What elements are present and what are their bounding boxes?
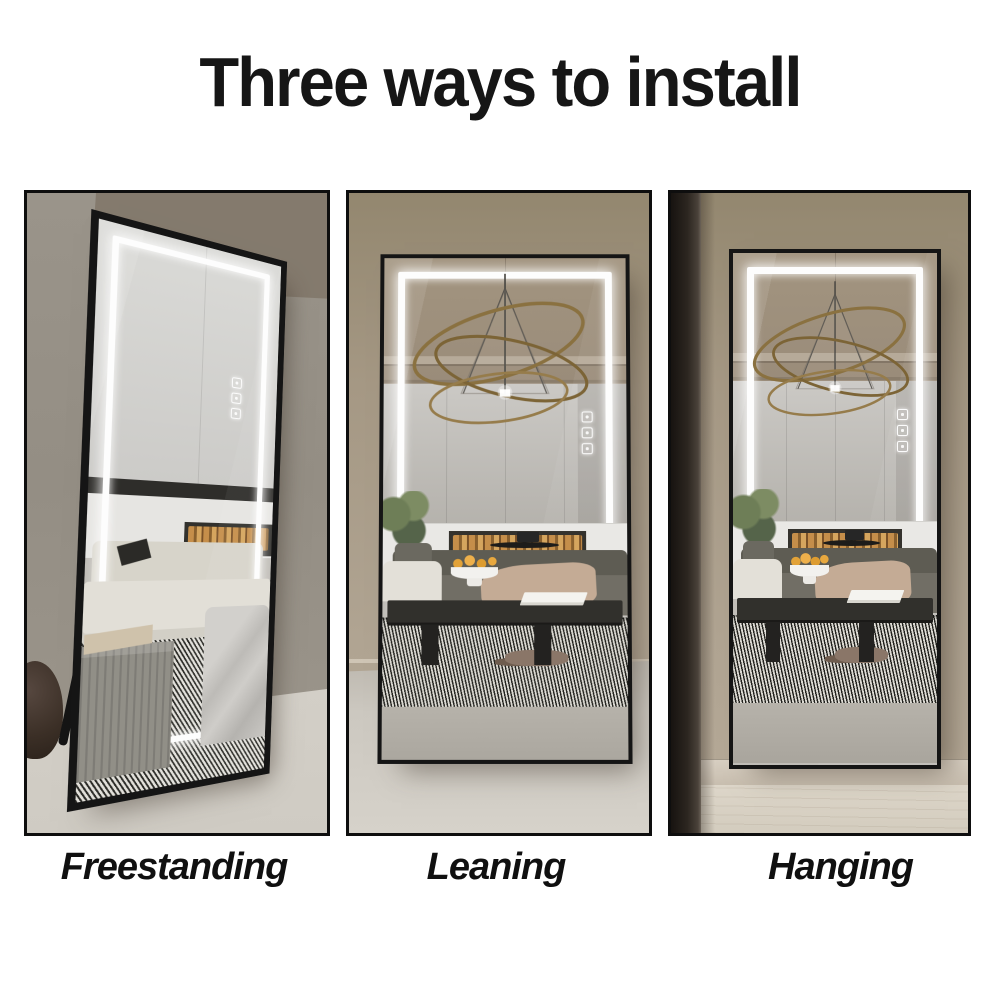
- brightness-icon: [897, 425, 908, 436]
- reflection-table-leg: [766, 622, 780, 662]
- reflection-side-table: [823, 540, 880, 546]
- reflection-sofa-arm: [382, 561, 441, 601]
- reflection-coffee-table: [737, 598, 933, 620]
- touch-controls: [897, 409, 908, 452]
- mirror-freestanding: [67, 209, 287, 812]
- mirror-hanging: [729, 249, 941, 769]
- reflection-coffee-table: [387, 600, 623, 622]
- label-hanging: Hanging: [692, 846, 989, 892]
- reflection-open-book: [847, 590, 905, 603]
- touch-controls: [231, 377, 242, 419]
- reflection-table-leg: [421, 625, 438, 666]
- reflection-bowl-foot: [467, 578, 482, 586]
- reflection-table-leg: [534, 625, 551, 666]
- page-title: Three ways to install: [35, 42, 965, 122]
- panel-hanging: [668, 190, 971, 836]
- reflection-open-book: [520, 592, 588, 605]
- reflection-radio: [517, 532, 539, 542]
- panel-leaning: [346, 190, 652, 836]
- mirror-leaning: [377, 254, 632, 764]
- reflection-radio: [845, 530, 863, 540]
- mirror-glass: [733, 253, 937, 765]
- mirror-glass: [382, 258, 629, 760]
- power-icon: [232, 377, 242, 389]
- reflection-ottoman: [76, 641, 175, 783]
- reflection-marble-table: [200, 605, 269, 746]
- floor: [701, 785, 968, 833]
- label-freestanding: Freestanding: [24, 846, 324, 892]
- power-icon: [582, 412, 593, 423]
- reflection-rug: [733, 615, 937, 707]
- reflection-table-leg: [859, 622, 873, 662]
- touch-controls: [582, 412, 593, 455]
- reflection-bowl-foot: [803, 576, 815, 584]
- mirror-glass: [75, 219, 281, 803]
- reflection-floor: [382, 707, 629, 760]
- brightness-icon: [582, 427, 593, 438]
- reflection-rug: [382, 618, 628, 711]
- color-temperature-icon: [897, 441, 908, 452]
- install-guide-image: Three ways to install: [0, 0, 1000, 1000]
- pillar-shadow: [701, 193, 715, 833]
- reflection-floor: [733, 703, 937, 763]
- door-frame-pillar: [671, 193, 701, 833]
- power-icon: [897, 409, 908, 420]
- reflection-sofa-arm: [733, 559, 782, 599]
- reflection-side-table: [490, 542, 558, 548]
- label-leaning: Leaning: [346, 846, 646, 892]
- panel-freestanding: [24, 190, 330, 836]
- brightness-icon: [231, 392, 241, 404]
- color-temperature-icon: [231, 408, 241, 420]
- color-temperature-icon: [582, 443, 593, 454]
